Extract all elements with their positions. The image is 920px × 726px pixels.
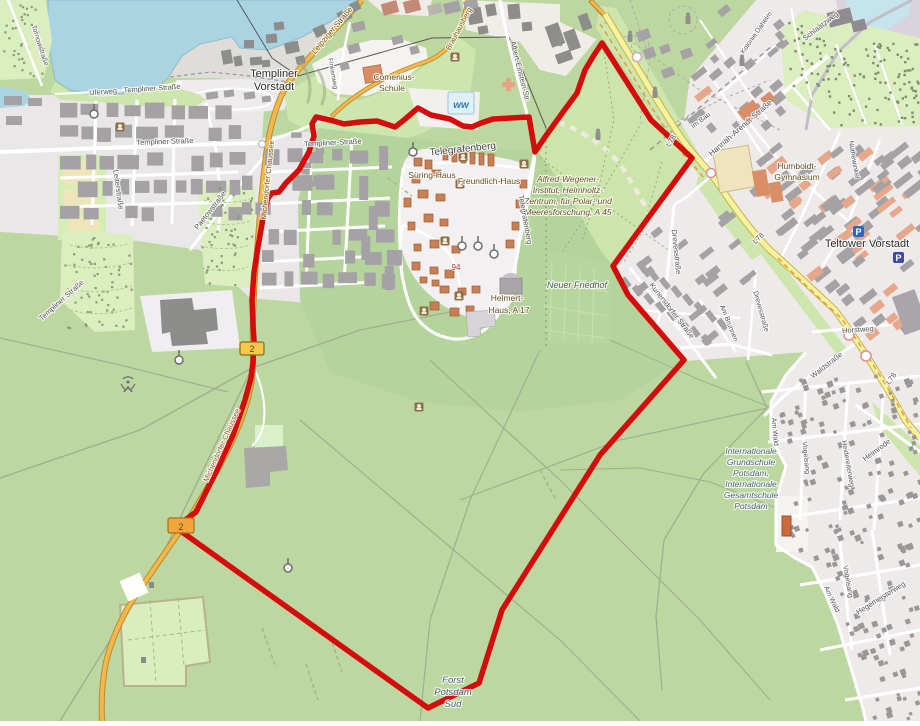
svg-text:Schule: Schule bbox=[379, 83, 405, 93]
svg-text:Freundlich-Haus: Freundlich-Haus bbox=[458, 176, 520, 186]
svg-text:Süd: Süd bbox=[445, 699, 463, 710]
svg-text:Internationale: Internationale bbox=[725, 479, 777, 489]
svg-text:Potsdam: Potsdam bbox=[734, 501, 768, 511]
svg-text:Süring-Haus: Süring-Haus bbox=[408, 170, 455, 180]
svg-text:Gymnasium: Gymnasium bbox=[774, 172, 819, 182]
svg-text:2: 2 bbox=[249, 344, 254, 354]
svg-text:Institut, Helmholtz-: Institut, Helmholtz- bbox=[533, 185, 604, 195]
svg-text:Helmert-: Helmert- bbox=[491, 293, 524, 303]
svg-text:Potsdam,: Potsdam, bbox=[733, 468, 769, 478]
svg-text:Humboldt-: Humboldt- bbox=[777, 161, 816, 171]
svg-text:Grundschule: Grundschule bbox=[727, 457, 775, 467]
svg-text:Forst: Forst bbox=[442, 675, 464, 686]
svg-text:P: P bbox=[855, 227, 861, 237]
svg-text:Teltower Vorstadt: Teltower Vorstadt bbox=[825, 238, 909, 250]
svg-text:Potsdam: Potsdam bbox=[434, 687, 472, 698]
svg-text:Templiner: Templiner bbox=[250, 68, 298, 80]
svg-text:Internationale: Internationale bbox=[725, 446, 777, 456]
svg-text:Zentrum, für Polar- und: Zentrum, für Polar- und bbox=[523, 196, 612, 206]
svg-text:Meeresforschung, A 45: Meeresforschung, A 45 bbox=[524, 207, 612, 217]
svg-text:Alfred-Wegener-: Alfred-Wegener- bbox=[536, 174, 599, 184]
svg-text:94: 94 bbox=[452, 263, 461, 272]
svg-text:2: 2 bbox=[178, 522, 183, 532]
svg-text:Comenius-: Comenius- bbox=[373, 72, 414, 82]
svg-text:ww: ww bbox=[453, 100, 470, 111]
svg-text:Neuer Friedhof: Neuer Friedhof bbox=[547, 280, 609, 290]
svg-text:Vorstadt: Vorstadt bbox=[254, 81, 294, 93]
svg-text:Gesamtschule: Gesamtschule bbox=[724, 490, 779, 500]
svg-text:P: P bbox=[895, 253, 901, 263]
svg-text:Haus, A 17: Haus, A 17 bbox=[488, 305, 529, 315]
